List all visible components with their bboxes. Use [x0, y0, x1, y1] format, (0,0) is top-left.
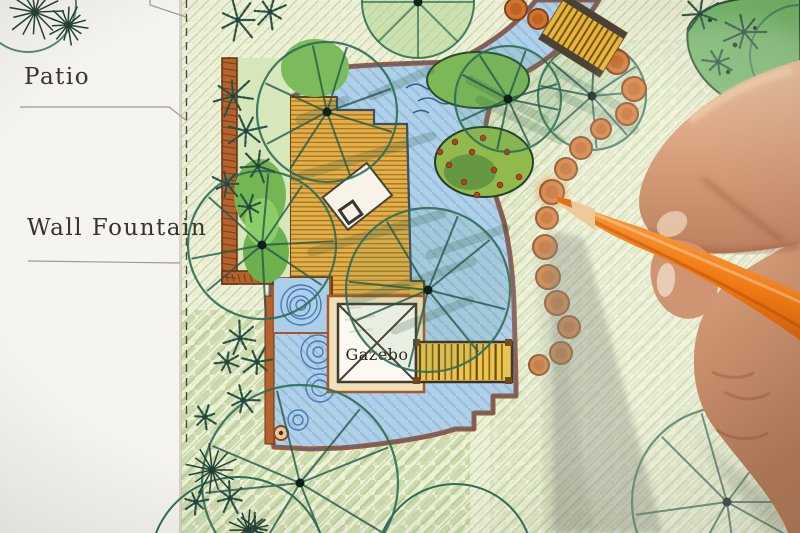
garden-plan-photo: Gazebo Patio Wall Fountain [0, 0, 800, 533]
plan-drawing: Gazebo Patio Wall Fountain [0, 0, 800, 533]
vignette [0, 0, 800, 533]
